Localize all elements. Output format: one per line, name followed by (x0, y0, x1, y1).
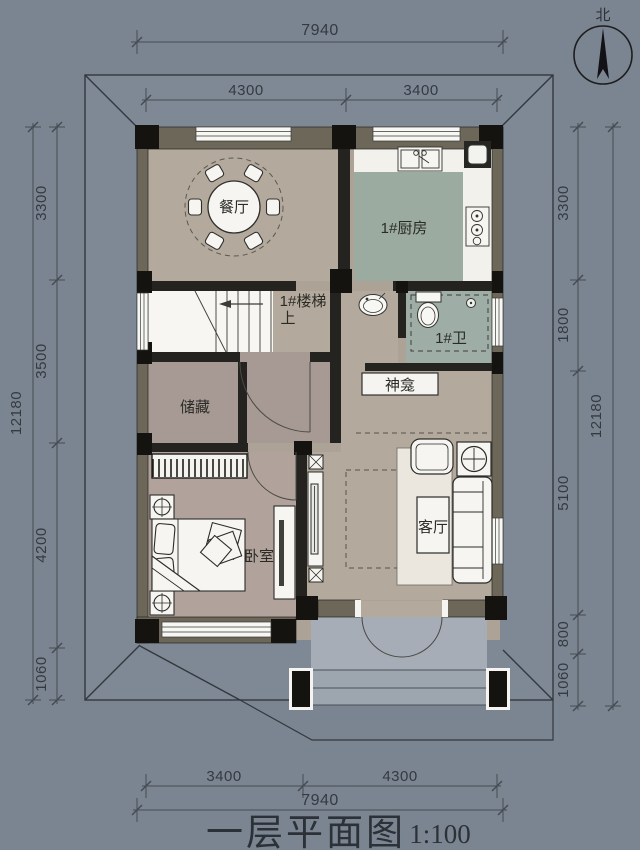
dim-bottom-overall: 7940 (301, 792, 339, 809)
porch-floor (311, 617, 487, 670)
dining-label: 餐厅 (219, 199, 249, 216)
stairs-window (137, 293, 148, 350)
bedroom-tv-cabinet (274, 506, 295, 599)
dim-right-seg-1: 1800 (555, 307, 572, 342)
living-label: 客厅 (418, 519, 448, 536)
drawing-title: 一层平面图 1:100 (206, 813, 471, 850)
dim-right-seg-3: 800 (555, 621, 572, 648)
entry-door-opening (361, 601, 442, 617)
living-window (492, 518, 503, 564)
dining-window (196, 127, 291, 141)
dim-top-seg-1: 3400 (403, 82, 438, 99)
kitchen-fridge (464, 141, 491, 168)
floor-plan-page: 餐厅 1#厨房 1#楼梯 上 1#卫 神龛 储藏 客厅 卧室 (0, 0, 640, 850)
porch-column (292, 671, 310, 707)
north-arrow-icon (597, 28, 609, 79)
stairs-up-label: 上 (280, 310, 295, 327)
shower-drain (467, 299, 476, 308)
kitchen-label: 1#厨房 (381, 220, 428, 237)
dim-top-overall: 7940 (301, 22, 339, 39)
pillow (154, 523, 176, 555)
plan-title: 一层平面图 (206, 813, 406, 850)
bedroom-label: 卧室 (244, 548, 274, 565)
dim-right-overall: 12180 (588, 394, 605, 438)
dim-left-seg-0: 3300 (33, 185, 50, 220)
bedroom-tv (279, 520, 284, 586)
porch-column (489, 671, 507, 707)
bathroom-label: 1#卫 (435, 330, 467, 347)
compass-north-label: 北 (595, 7, 610, 24)
dim-left-seg-2: 4200 (33, 527, 50, 562)
sofa (453, 477, 492, 583)
dim-left-overall: 12180 (8, 391, 25, 435)
bathroom-window (492, 298, 503, 346)
living-tv-console (308, 455, 323, 582)
north-compass: 北 (574, 7, 632, 84)
dim-right-seg-0: 3300 (555, 185, 572, 220)
wardrobe (152, 454, 247, 478)
dining-chair (189, 199, 202, 215)
storage-label: 储藏 (180, 399, 210, 416)
dim-right-seg-2: 5100 (555, 475, 572, 510)
dim-bottom-seg-0: 3400 (206, 768, 241, 785)
dim-left-seg-3: 1060 (33, 656, 50, 691)
dim-bottom-seg-1: 4300 (382, 768, 417, 785)
dim-top-seg-0: 4300 (228, 82, 263, 99)
bedroom-window (162, 622, 271, 637)
dining-chair (267, 199, 280, 215)
dim-right-seg-4: 1060 (555, 662, 572, 697)
floor-plan-drawing: 餐厅 1#厨房 1#楼梯 上 1#卫 神龛 储藏 客厅 卧室 (0, 0, 640, 850)
porch-steps-floor (310, 670, 488, 705)
kitchen-stove (466, 207, 489, 246)
plan-scale: 1:100 (409, 819, 471, 849)
dim-left-seg-1: 3500 (33, 343, 50, 378)
shrine-label: 神龛 (385, 377, 415, 394)
kitchen-window (373, 127, 460, 141)
kitchen-sink (398, 147, 442, 171)
stairs-label: 1#楼梯 (280, 293, 327, 310)
